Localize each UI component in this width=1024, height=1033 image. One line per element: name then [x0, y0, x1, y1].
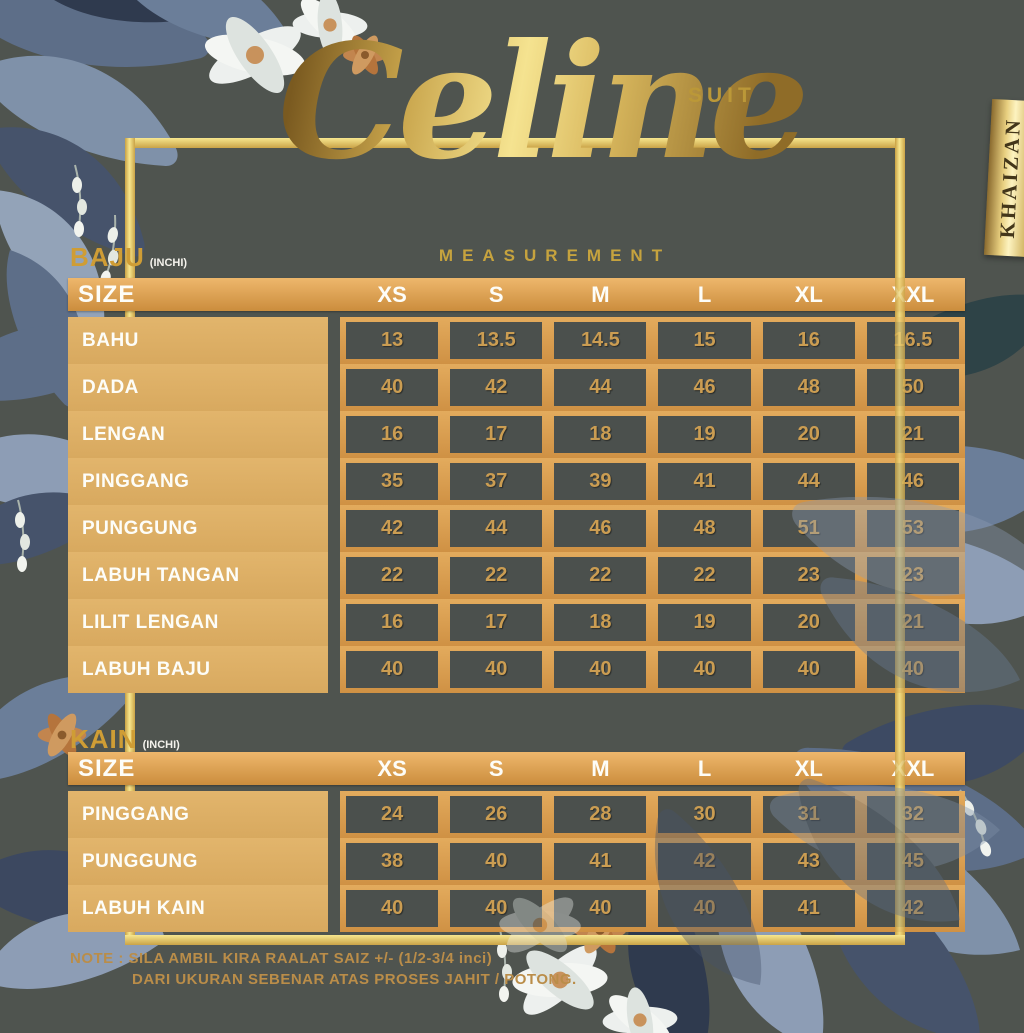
row-values: 40 42 44 46 48 50	[340, 364, 965, 411]
size-cell: 16	[763, 322, 855, 359]
size-chart-page: Celine SUIT KHAIZAN MEASUREMENT BAJU (IN…	[0, 0, 1024, 1033]
section-label-baju: BAJU (INCHI)	[70, 242, 187, 273]
row-label: LABUH BAJU	[68, 646, 328, 693]
size-cell: 41	[763, 890, 855, 927]
table-header-row: SIZE XS S M L XL XXL	[68, 752, 965, 785]
size-cell: 15	[658, 322, 750, 359]
size-cell: 46	[658, 369, 750, 406]
column-header-m: M	[548, 756, 652, 782]
size-cell: 23	[763, 557, 855, 594]
size-cell: 44	[763, 463, 855, 500]
size-cell: 48	[658, 510, 750, 547]
size-cell: 40	[346, 651, 438, 688]
note-line-1: NOTE : SILA AMBIL KIRA RAALAT SAIZ +/- (…	[70, 948, 577, 969]
size-cell: 40	[867, 651, 959, 688]
size-cell: 39	[554, 463, 646, 500]
size-cell: 18	[554, 604, 646, 641]
size-cell: 26	[450, 796, 542, 833]
column-header-m: M	[548, 282, 652, 308]
row-label: PINGGANG	[68, 458, 328, 505]
gold-frame-bottom	[125, 935, 905, 945]
table-body: BAHU 13 13.5 14.5 15 16 16.5 DADA 40 42 …	[68, 317, 965, 693]
table-row-pinggang: PINGGANG 35 37 39 41 44 46	[68, 458, 965, 505]
size-cell: 40	[450, 890, 542, 927]
row-values: 16 17 18 19 20 21	[340, 599, 965, 646]
size-cell: 22	[554, 557, 646, 594]
column-header-l: L	[653, 756, 757, 782]
size-cell: 19	[658, 416, 750, 453]
product-subtitle: SUIT	[688, 84, 756, 108]
size-cell: 40	[450, 651, 542, 688]
column-header-xl: XL	[757, 282, 861, 308]
size-cell: 42	[658, 843, 750, 880]
size-cell: 22	[346, 557, 438, 594]
row-values: 42 44 46 48 51 53	[340, 505, 965, 552]
row-label: PUNGGUNG	[68, 838, 328, 885]
column-header-s: S	[444, 282, 548, 308]
section-title: KAIN	[70, 724, 138, 755]
size-cell: 51	[763, 510, 855, 547]
column-header-xl: XL	[757, 756, 861, 782]
size-cell: 16	[346, 604, 438, 641]
column-header-l: L	[653, 282, 757, 308]
size-cell: 40	[763, 651, 855, 688]
row-label: LABUH KAIN	[68, 885, 328, 932]
size-cell: 16.5	[867, 322, 959, 359]
size-cell: 18	[554, 416, 646, 453]
note-line-2: DARI UKURAN SEBENAR ATAS PROSES JAHIT / …	[132, 969, 577, 990]
size-cell: 45	[867, 843, 959, 880]
section-unit: (INCHI)	[143, 739, 180, 751]
row-values: 16 17 18 19 20 21	[340, 411, 965, 458]
row-label: LENGAN	[68, 411, 328, 458]
row-values: 22 22 22 22 23 23	[340, 552, 965, 599]
size-cell: 42	[346, 510, 438, 547]
size-cell: 31	[763, 796, 855, 833]
size-cell: 17	[450, 604, 542, 641]
size-cell: 22	[450, 557, 542, 594]
row-values: 24 26 28 30 31 32	[340, 791, 965, 838]
table-row-pinggang-kain: PINGGANG 24 26 28 30 31 32	[68, 791, 965, 838]
size-cell: 40	[658, 651, 750, 688]
size-cell: 17	[450, 416, 542, 453]
size-cell: 40	[554, 890, 646, 927]
size-cell: 32	[867, 796, 959, 833]
section-label-kain: KAIN (INCHI)	[70, 724, 180, 755]
column-header-xs: XS	[340, 282, 444, 308]
size-cell: 41	[658, 463, 750, 500]
row-values: 40 40 40 40 40 40	[340, 646, 965, 693]
sizing-note: NOTE : SILA AMBIL KIRA RAALAT SAIZ +/- (…	[70, 948, 577, 990]
row-values: 13 13.5 14.5 15 16 16.5	[340, 317, 965, 364]
size-header-label: SIZE	[68, 281, 340, 309]
measurement-heading: MEASUREMENT	[90, 246, 1020, 266]
size-cell: 28	[554, 796, 646, 833]
size-cell: 37	[450, 463, 542, 500]
row-label: PINGGANG	[68, 791, 328, 838]
table-body: PINGGANG 24 26 28 30 31 32 PUNGGUNG 38 4…	[68, 791, 965, 932]
size-cell: 22	[658, 557, 750, 594]
table-header-row: SIZE XS S M L XL XXL	[68, 278, 965, 311]
row-label: DADA	[68, 364, 328, 411]
size-cell: 50	[867, 369, 959, 406]
column-header-s: S	[444, 756, 548, 782]
size-cell: 21	[867, 604, 959, 641]
size-cell: 42	[867, 890, 959, 927]
table-row-punggung-kain: PUNGGUNG 38 40 41 42 43 45	[68, 838, 965, 885]
section-title: BAJU	[70, 242, 145, 273]
size-cell: 41	[554, 843, 646, 880]
table-row-labuh-tangan: LABUH TANGAN 22 22 22 22 23 23	[68, 552, 965, 599]
size-cell: 40	[346, 890, 438, 927]
row-values: 35 37 39 41 44 46	[340, 458, 965, 505]
table-row-lilit-lengan: LILIT LENGAN 16 17 18 19 20 21	[68, 599, 965, 646]
row-label: LABUH TANGAN	[68, 552, 328, 599]
table-row-labuh-kain: LABUH KAIN 40 40 40 40 41 42	[68, 885, 965, 932]
size-cell: 23	[867, 557, 959, 594]
size-cell: 42	[450, 369, 542, 406]
row-label: PUNGGUNG	[68, 505, 328, 552]
row-values: 38 40 41 42 43 45	[340, 838, 965, 885]
table-row-labuh-baju: LABUH BAJU 40 40 40 40 40 40	[68, 646, 965, 693]
size-cell: 40	[658, 890, 750, 927]
size-cell: 43	[763, 843, 855, 880]
size-cell: 40	[346, 369, 438, 406]
size-table-kain: SIZE XS S M L XL XXL PINGGANG 24 26 28 3…	[68, 752, 965, 932]
row-values: 40 40 40 40 41 42	[340, 885, 965, 932]
size-cell: 35	[346, 463, 438, 500]
size-cell: 40	[554, 651, 646, 688]
table-row-lengan: LENGAN 16 17 18 19 20 21	[68, 411, 965, 458]
brand-ribbon: KHAIZAN	[984, 99, 1024, 257]
row-label: LILIT LENGAN	[68, 599, 328, 646]
table-row-punggung: PUNGGUNG 42 44 46 48 51 53	[68, 505, 965, 552]
size-cell: 44	[554, 369, 646, 406]
size-cell: 46	[867, 463, 959, 500]
size-cell: 19	[658, 604, 750, 641]
size-cell: 20	[763, 416, 855, 453]
size-cell: 21	[867, 416, 959, 453]
section-unit: (INCHI)	[150, 257, 187, 269]
size-cell: 40	[450, 843, 542, 880]
size-cell: 13.5	[450, 322, 542, 359]
row-label: BAHU	[68, 317, 328, 364]
size-cell: 30	[658, 796, 750, 833]
column-header-xs: XS	[340, 756, 444, 782]
column-header-xxl: XXL	[861, 756, 965, 782]
size-cell: 13	[346, 322, 438, 359]
size-cell: 16	[346, 416, 438, 453]
brand-name: KHAIZAN	[994, 117, 1024, 240]
size-cell: 14.5	[554, 322, 646, 359]
size-cell: 48	[763, 369, 855, 406]
table-row-bahu: BAHU 13 13.5 14.5 15 16 16.5	[68, 317, 965, 364]
size-cell: 44	[450, 510, 542, 547]
table-row-dada: DADA 40 42 44 46 48 50	[68, 364, 965, 411]
size-header-label: SIZE	[68, 755, 340, 783]
size-cell: 20	[763, 604, 855, 641]
column-header-xxl: XXL	[861, 282, 965, 308]
size-table-baju: SIZE XS S M L XL XXL BAHU 13 13.5 14.5 1…	[68, 278, 965, 693]
size-cell: 38	[346, 843, 438, 880]
size-cell: 24	[346, 796, 438, 833]
size-cell: 53	[867, 510, 959, 547]
size-cell: 46	[554, 510, 646, 547]
